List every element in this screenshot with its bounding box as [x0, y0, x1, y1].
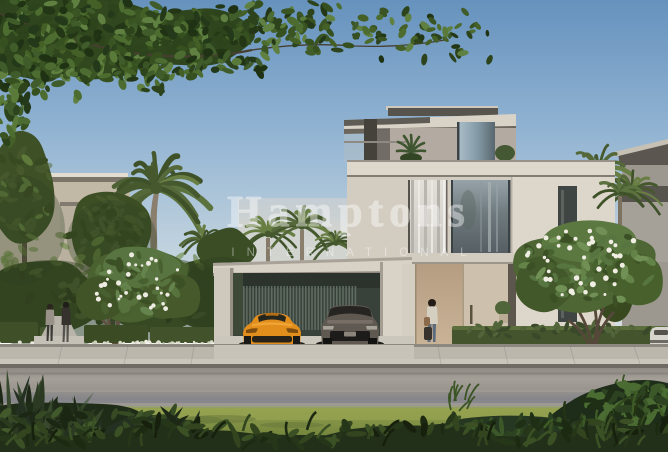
svg-text:INTERNATIONAL: INTERNATIONAL — [231, 247, 478, 259]
svg-text:Hamptons: Hamptons — [227, 187, 471, 236]
